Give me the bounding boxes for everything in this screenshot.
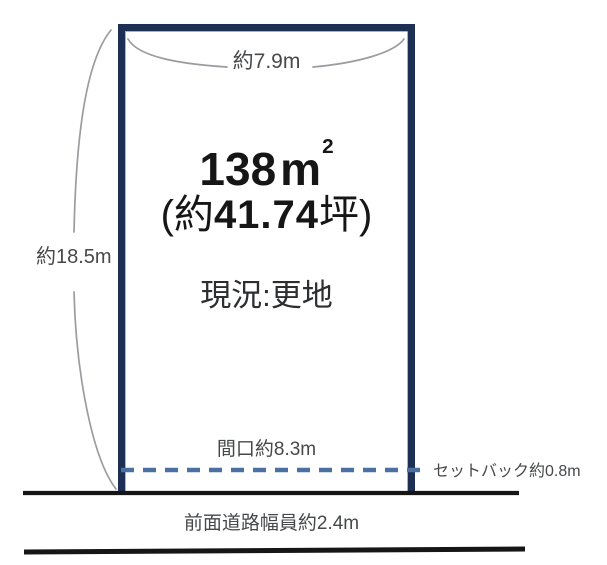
plot-boundary	[118, 24, 415, 491]
area-number: 138	[199, 143, 276, 195]
area-unit: m2	[280, 143, 333, 195]
top-width-label: 約7.9m	[118, 51, 415, 72]
road-width-label: 前面道路幅員約2.4m	[23, 514, 520, 533]
tsubo-suffix: 坪)	[319, 193, 372, 237]
tsubo-number: 41.74	[214, 193, 319, 237]
road-far-edge-line	[24, 549, 525, 552]
height-brace-upper-curve	[74, 30, 111, 232]
side-height-label: 約18.5m	[36, 247, 112, 267]
area-exponent: 2	[322, 135, 334, 158]
status-label: 現況:更地	[118, 278, 415, 314]
area-size: 138m2	[118, 146, 415, 192]
land-plot-diagram: 約7.9m 約18.5m 138m2 (約41.74坪) 現況:更地 間口約8.…	[0, 0, 607, 565]
area-unit-letter: m	[280, 143, 321, 195]
setback-label: セットバック約0.8m	[433, 464, 581, 480]
tsubo-prefix: (約	[161, 193, 214, 237]
area-tsubo: (約41.74坪)	[118, 192, 415, 238]
height-brace-lower-curve	[74, 292, 116, 489]
frontage-label: 間口約8.3m	[118, 440, 415, 459]
